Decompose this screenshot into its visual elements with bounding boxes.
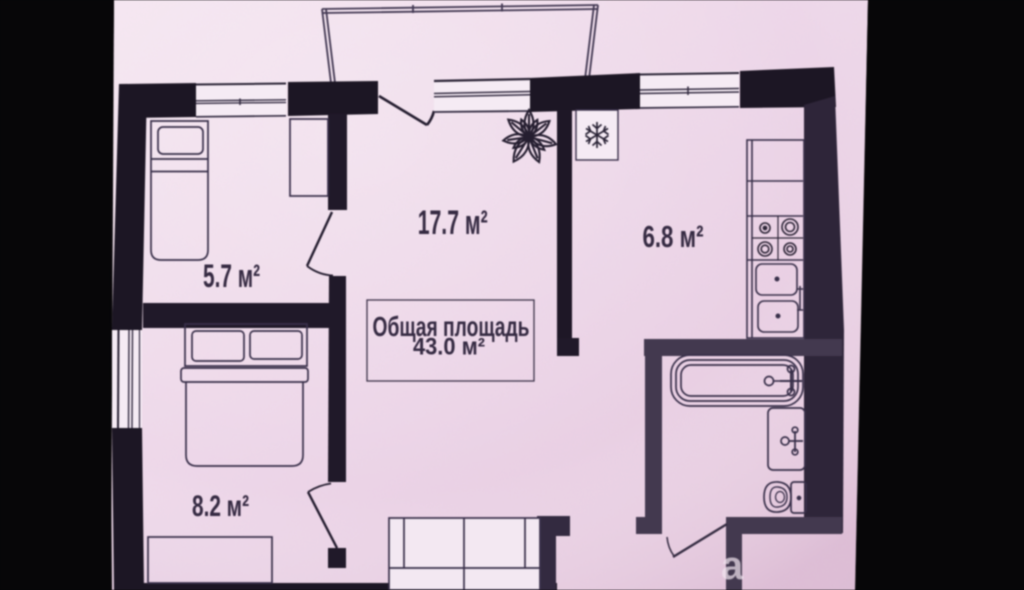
svg-text:8.2 м²: 8.2 м² <box>192 490 249 523</box>
svg-text:6.8 м²: 6.8 м² <box>643 219 704 254</box>
svg-text:5.7 м²: 5.7 м² <box>203 258 260 294</box>
svg-text:17.7 м²: 17.7 м² <box>418 204 488 242</box>
svg-text:43.0 м²: 43.0 м² <box>413 334 485 361</box>
svg-text:а: а <box>721 544 744 588</box>
